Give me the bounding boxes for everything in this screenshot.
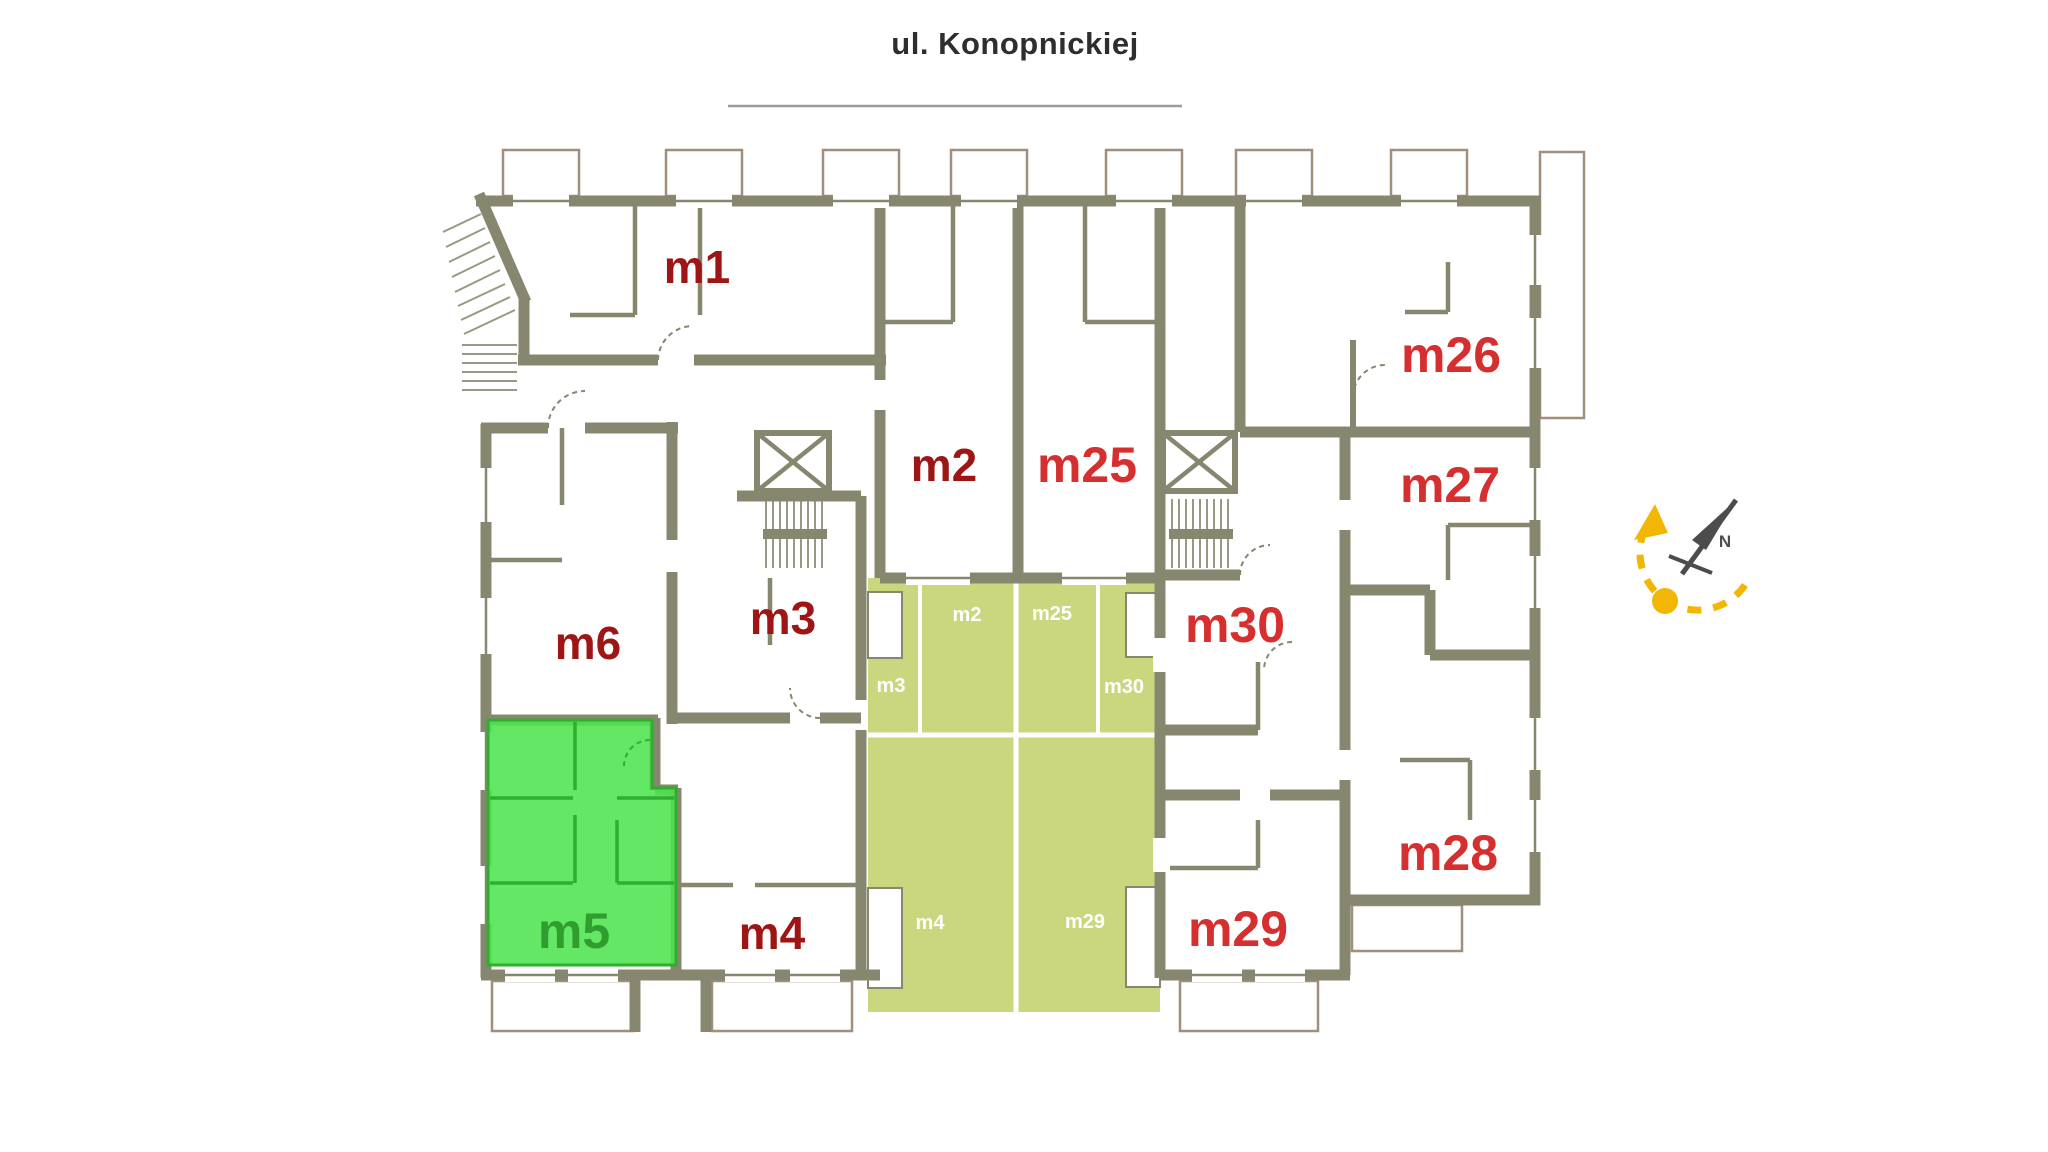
arc-pivot-dot	[1652, 588, 1678, 614]
garden-label-m30: m30	[1104, 676, 1144, 698]
balcony	[1236, 150, 1312, 196]
unit-label-m27[interactable]: m27	[1400, 457, 1500, 513]
balcony	[951, 150, 1027, 196]
balcony	[666, 150, 742, 196]
garden-area	[868, 578, 1160, 1012]
garden-label-m25: m25	[1032, 603, 1072, 625]
unit-label-m1[interactable]: m1	[664, 241, 730, 293]
unit-label-m6[interactable]: m6	[555, 617, 621, 669]
street-title: ul. Konopnickiej	[891, 26, 1138, 61]
unit-label-m29[interactable]: m29	[1188, 901, 1288, 957]
garden-label-m29: m29	[1065, 911, 1105, 933]
terrace	[712, 981, 852, 1031]
north-label: N	[1719, 532, 1731, 551]
terrace	[1180, 981, 1318, 1031]
balcony	[1391, 150, 1467, 196]
balcony	[823, 150, 899, 196]
terrace	[492, 981, 634, 1031]
balcony	[1106, 150, 1182, 196]
unit-label-m26[interactable]: m26	[1401, 327, 1501, 383]
balcony	[1540, 152, 1584, 418]
garden-label-m3: m3	[877, 675, 906, 697]
floor-plan-page: ul. Konopnickiej	[0, 0, 2048, 1152]
unit-label-m3[interactable]: m3	[750, 592, 816, 644]
external-stairs	[443, 214, 517, 390]
unit-label-m25[interactable]: m25	[1037, 437, 1137, 493]
unit-label-m28[interactable]: m28	[1398, 825, 1498, 881]
balcony	[503, 150, 579, 196]
terrace	[1352, 905, 1462, 951]
unit-label-m2[interactable]: m2	[911, 439, 977, 491]
garden-label-m4: m4	[916, 912, 946, 934]
garden-label-m2: m2	[953, 604, 982, 626]
stairwell-right	[1163, 433, 1235, 568]
arc-arrowhead-icon	[1634, 504, 1668, 540]
unit-label-m5[interactable]: m5	[538, 903, 610, 959]
unit-label-m4[interactable]: m4	[739, 907, 806, 959]
unit-label-m30[interactable]: m30	[1185, 597, 1285, 653]
stair-landing	[763, 529, 827, 539]
floor-plan: ul. Konopnickiej	[0, 0, 2048, 1152]
stair-landing	[1169, 529, 1233, 539]
compass: N	[1634, 500, 1745, 614]
